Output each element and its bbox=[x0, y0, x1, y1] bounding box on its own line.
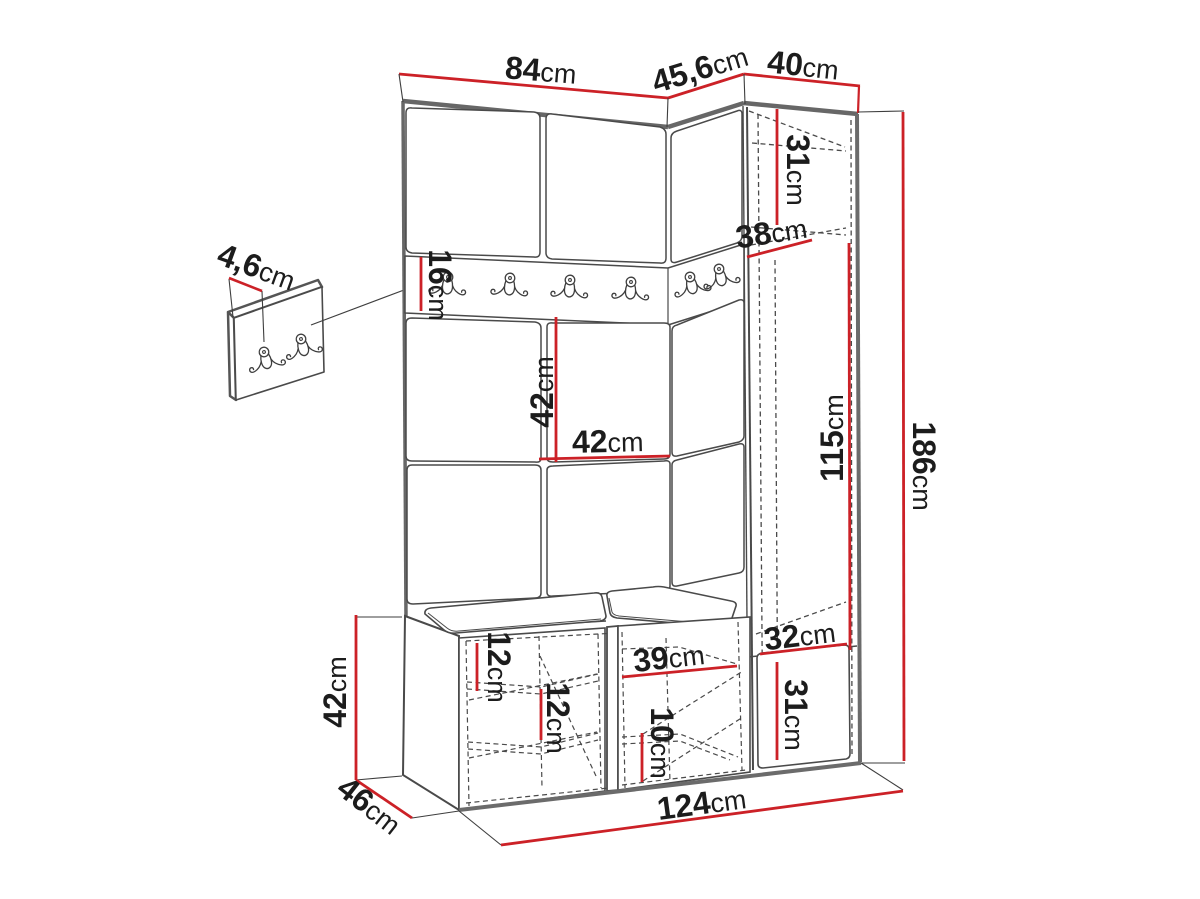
svg-text:16cm: 16cm bbox=[422, 249, 458, 321]
svg-text:42cm: 42cm bbox=[524, 356, 560, 428]
svg-text:31cm: 31cm bbox=[780, 134, 816, 206]
svg-text:186cm: 186cm bbox=[906, 421, 942, 510]
svg-text:42cm: 42cm bbox=[317, 656, 353, 728]
svg-text:115cm: 115cm bbox=[814, 394, 850, 482]
svg-text:42cm: 42cm bbox=[571, 422, 644, 460]
svg-text:10cm: 10cm bbox=[644, 707, 680, 779]
svg-text:31cm: 31cm bbox=[778, 679, 814, 751]
svg-text:12cm: 12cm bbox=[540, 682, 576, 754]
svg-text:12cm: 12cm bbox=[481, 631, 517, 703]
